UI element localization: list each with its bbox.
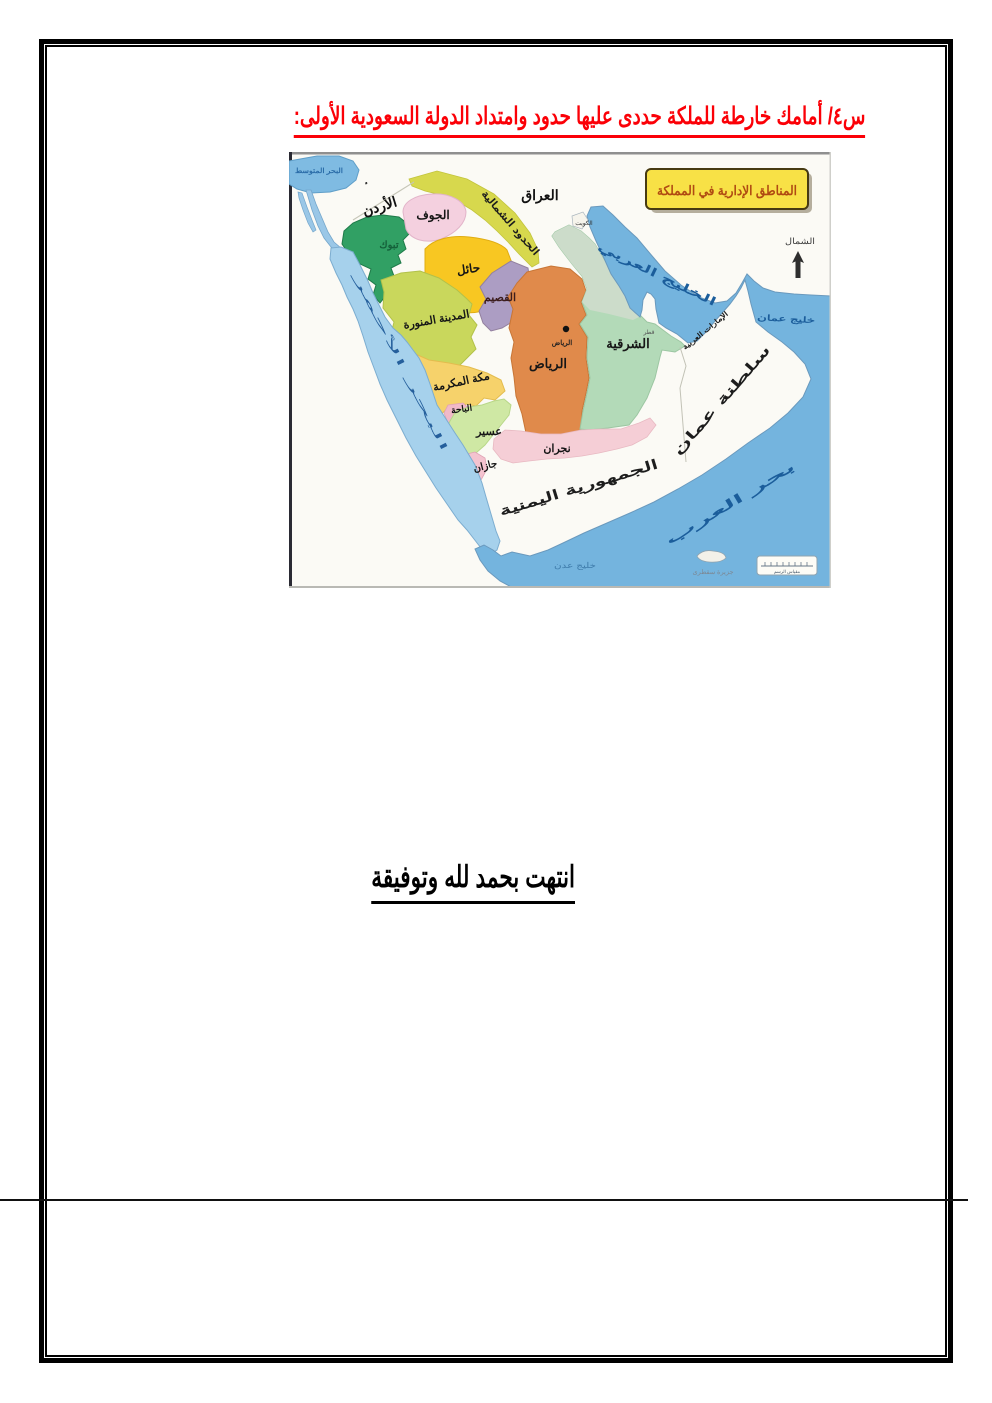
svg-text:ٴ: ٴ: [365, 182, 368, 192]
svg-text:الرياض: الرياض: [552, 339, 573, 347]
svg-text:الشمال: الشمال: [785, 236, 815, 246]
svg-text:جزيرة سقطرى: جزيرة سقطرى: [693, 568, 734, 576]
svg-text:المناطق الإدارية في المملكة: المناطق الإدارية في المملكة: [657, 183, 797, 199]
svg-text:العراق: العراق: [521, 187, 558, 204]
svg-text:الكويت: الكويت: [575, 220, 593, 227]
svg-text:تبوك: تبوك: [379, 240, 398, 251]
svg-text:الجوف: الجوف: [416, 208, 449, 223]
svg-text:نجران: نجران: [543, 443, 570, 455]
svg-text:الرياض: الرياض: [529, 356, 567, 372]
svg-text:البحر المتوسط: البحر المتوسط: [295, 167, 343, 175]
svg-text:القصيم: القصيم: [484, 292, 516, 304]
svg-text:خليج عدن: خليج عدن: [554, 561, 596, 570]
svg-text:عسير: عسير: [475, 426, 502, 438]
svg-text:الشرقية: الشرقية: [606, 336, 649, 352]
svg-text:قطر: قطر: [642, 329, 654, 336]
